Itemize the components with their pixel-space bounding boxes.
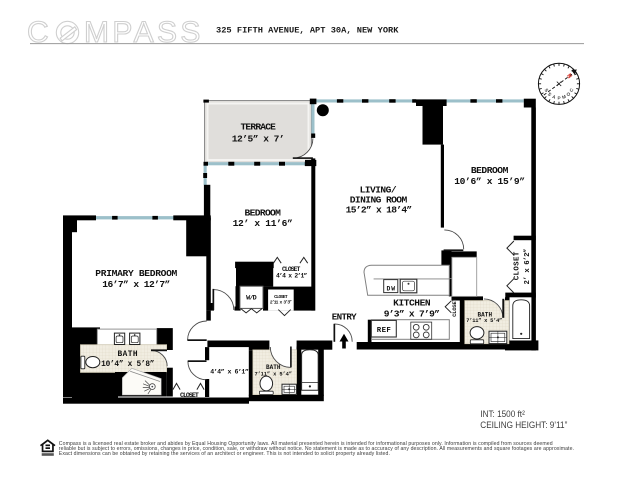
svg-text:7’11” x 5’4”: 7’11” x 5’4” xyxy=(466,318,502,324)
svg-text:10’4” x 5’8”: 10’4” x 5’8” xyxy=(101,361,155,369)
svg-text:325 FIFTH AVENUE, APT 30A, NEW: 325 FIFTH AVENUE, APT 30A, NEW YORK xyxy=(216,26,399,36)
svg-text:2’ x 6’2”: 2’ x 6’2” xyxy=(524,249,532,285)
svg-text:12’ x 11’6”: 12’ x 11’6” xyxy=(233,218,293,229)
svg-text:DW: DW xyxy=(387,285,396,292)
svg-text:ENTRY: ENTRY xyxy=(332,311,357,322)
svg-text:CLOSET: CLOSET xyxy=(180,392,199,399)
svg-text:PRIMARY BEDROOM: PRIMARY BEDROOM xyxy=(95,268,177,279)
svg-text:REF: REF xyxy=(377,327,391,335)
svg-text:KITCHEN: KITCHEN xyxy=(393,298,431,309)
svg-text:CEILING HEIGHT: 9’11”: CEILING HEIGHT: 9’11” xyxy=(480,419,567,430)
svg-text:7’11” x 5’4”: 7’11” x 5’4” xyxy=(254,372,292,378)
svg-text:BATH: BATH xyxy=(266,364,281,371)
svg-text:16’7” x 12’7”: 16’7” x 12’7” xyxy=(102,279,170,290)
svg-text:CLOSET: CLOSET xyxy=(514,251,522,280)
svg-text:BEDROOM: BEDROOM xyxy=(471,165,509,176)
svg-text:2’11 x 3’3”: 2’11 x 3’3” xyxy=(270,300,292,306)
svg-text:TERRACE: TERRACE xyxy=(240,122,276,133)
svg-text:W/D: W/D xyxy=(246,295,257,303)
svg-text:P: P xyxy=(557,95,560,100)
svg-text:Exact dimensions can be obtain: Exact dimensions can be obtained by reta… xyxy=(59,451,390,457)
svg-text:12’5” x 7’: 12’5” x 7’ xyxy=(232,133,285,144)
svg-text:10’6” x 15’9”: 10’6” x 15’9” xyxy=(454,176,525,187)
svg-text:CLOSET: CLOSET xyxy=(452,297,458,316)
svg-text:4’4 x 2’1”: 4’4 x 2’1” xyxy=(276,273,308,280)
svg-text:9’3” x 7’9”: 9’3” x 7’9” xyxy=(384,309,440,320)
svg-text:4’4” x 6’1”: 4’4” x 6’1” xyxy=(210,369,249,376)
svg-text:INT: 1500 ft²: INT: 1500 ft² xyxy=(480,408,525,419)
svg-text:CLOSET: CLOSET xyxy=(274,294,288,300)
svg-text:15’2” x 18’4”: 15’2” x 18’4” xyxy=(346,205,413,216)
svg-text:BATH: BATH xyxy=(118,351,138,359)
